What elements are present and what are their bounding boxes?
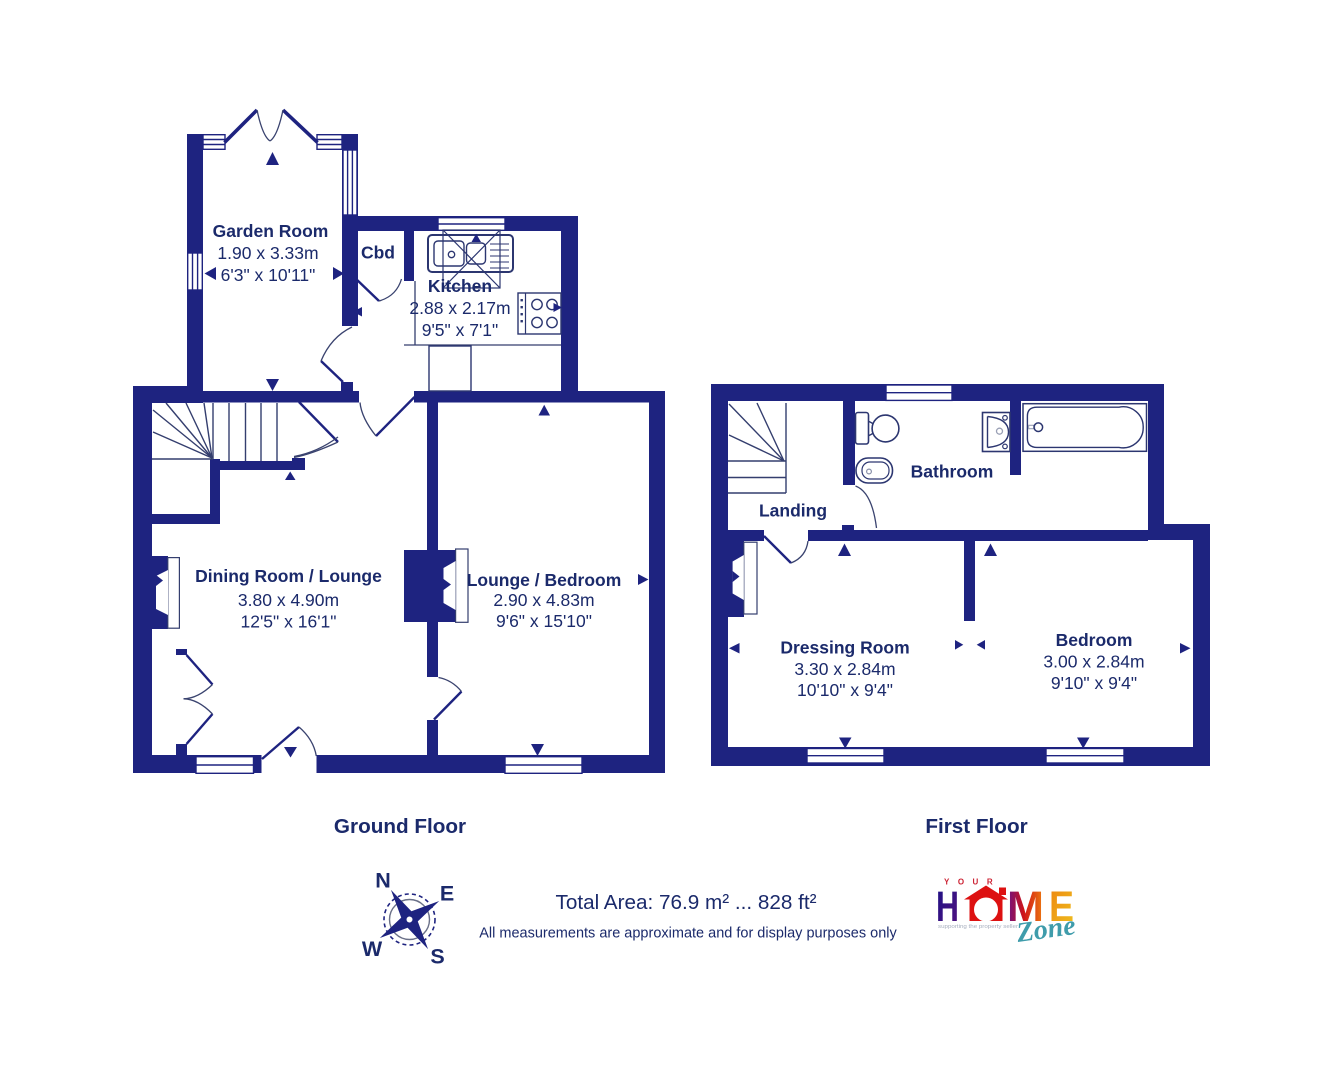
svg-text:Dining Room / Lounge: Dining Room / Lounge: [195, 566, 382, 586]
svg-text:W: W: [362, 937, 383, 961]
svg-text:First Floor: First Floor: [925, 815, 1027, 838]
svg-text:supporting the property seller: supporting the property seller: [938, 924, 1018, 930]
svg-text:3.00 x 2.84m: 3.00 x 2.84m: [1043, 652, 1144, 672]
svg-text:Bedroom: Bedroom: [1056, 630, 1133, 650]
svg-text:E: E: [440, 882, 454, 906]
svg-text:Garden Room: Garden Room: [213, 221, 329, 241]
svg-text:9'5" x 7'1": 9'5" x 7'1": [422, 320, 499, 340]
svg-text:Bathroom: Bathroom: [911, 462, 994, 482]
svg-text:3.80 x 4.90m: 3.80 x 4.90m: [238, 590, 339, 610]
svg-text:2.90 x 4.83m: 2.90 x 4.83m: [493, 590, 594, 610]
svg-text:9'10" x 9'4": 9'10" x 9'4": [1051, 673, 1137, 693]
svg-text:6'3" x 10'11": 6'3" x 10'11": [221, 265, 316, 285]
svg-text:Ground Floor: Ground Floor: [334, 815, 466, 838]
svg-text:3.30 x 2.84m: 3.30 x 2.84m: [794, 659, 895, 679]
svg-text:9'6" x 15'10": 9'6" x 15'10": [496, 611, 592, 631]
svg-text:2.88 x 2.17m: 2.88 x 2.17m: [409, 298, 510, 318]
svg-text:1.90 x 3.33m: 1.90 x 3.33m: [217, 243, 318, 263]
svg-text:Dressing Room: Dressing Room: [780, 638, 909, 658]
svg-text:Landing: Landing: [759, 501, 827, 521]
svg-text:N: N: [375, 869, 391, 893]
svg-text:Cbd: Cbd: [361, 243, 395, 263]
svg-text:Kitchen: Kitchen: [428, 276, 492, 296]
svg-text:S: S: [430, 945, 444, 969]
svg-text:10'10" x 9'4": 10'10" x 9'4": [797, 680, 893, 700]
svg-text:12'5" x 16'1": 12'5" x 16'1": [241, 612, 337, 632]
svg-text:All measurements are approxima: All measurements are approximate and for…: [479, 926, 897, 942]
svg-text:Lounge / Bedroom: Lounge / Bedroom: [467, 570, 622, 590]
svg-text:Total Area: 76.9 m² ... 828 ft: Total Area: 76.9 m² ... 828 ft²: [555, 891, 816, 914]
